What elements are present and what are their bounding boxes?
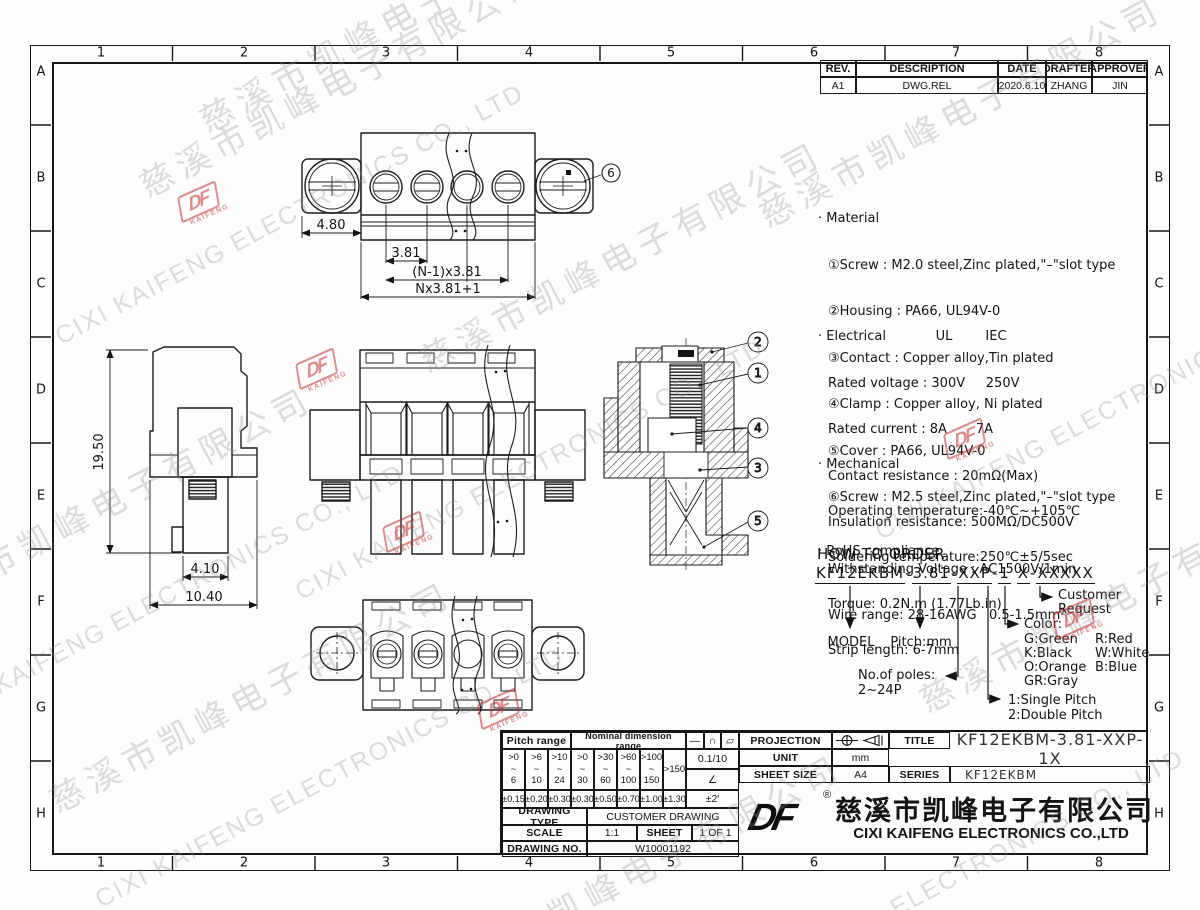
range-col: >100 ~ 150	[640, 749, 663, 790]
series-label: SERIES	[889, 766, 950, 783]
order-color-option: R:Red	[1095, 632, 1133, 647]
grid-col-label: 8	[1095, 47, 1103, 60]
range-col: >150	[663, 749, 686, 790]
tolerance-symbol-square: ▱	[721, 732, 739, 749]
section-title: · Electrical UL IEC	[818, 329, 1166, 345]
order-color-option: GR:Gray	[1024, 674, 1078, 689]
title-label: TITLE	[889, 732, 950, 749]
order-label-pitch: Pitch:mm	[886, 635, 956, 650]
company-block: DF ® 慈溪市凯峰电子有限公司 CIXI KAIFENG ELECTRONIC…	[739, 783, 1150, 857]
grid-row-label: D	[36, 384, 46, 397]
tolerance-value: ±0.30	[548, 790, 571, 808]
grid-row-label: H	[36, 808, 46, 821]
revision-cell: A1	[820, 77, 856, 94]
drawing-no-value: W10001192	[587, 841, 739, 857]
tolerance-value: ±0.15	[502, 790, 525, 808]
title-block: Pitch range Nominal dimension range — ∩ …	[500, 730, 1148, 855]
order-label-customer: Request	[1058, 602, 1111, 617]
grid-row-label: B	[37, 172, 46, 185]
series-value: KF12EKBM	[950, 766, 1150, 783]
pitch-range-header: Pitch range	[502, 732, 571, 749]
registered-mark: ®	[823, 789, 831, 801]
grid-row-label: F	[37, 596, 44, 609]
order-code: KF12EKBM-3.81-XXP-1 X-XXXXX	[815, 564, 1095, 582]
grid-col-label: 7	[952, 47, 960, 60]
tolerance-symbol-arc: ∩	[704, 732, 721, 749]
revision-table: REV. DESCRIPTION DATE DRAFTER APPROVER A…	[820, 60, 1148, 94]
order-color-option: W:White	[1095, 646, 1149, 661]
order-label-single-pitch: 1:Single Pitch	[1008, 693, 1096, 708]
tolerance-symbol-line: —	[686, 732, 704, 749]
grid-row-label: G	[36, 702, 46, 715]
projection-symbol-cell	[832, 732, 889, 749]
range-col: >10 ~ 24	[548, 749, 571, 790]
drawing-sheet: 4.80 3.81 (N-1)x3.81 Nx3.81+1 6 19.50	[0, 0, 1200, 910]
grid-col-label: 5	[667, 857, 675, 870]
range-col: >6 ~ 10	[525, 749, 548, 790]
grid-row-label: A	[1155, 66, 1164, 79]
sheet-label: SHEET	[637, 825, 692, 841]
grid-col-label: 6	[810, 47, 818, 60]
grid-col-label: 1	[97, 47, 105, 60]
range-col: >0 ~ 30	[571, 749, 594, 790]
order-color-option: O:Orange	[1024, 660, 1086, 675]
grid-col-label: 5	[667, 47, 675, 60]
revision-header: DESCRIPTION	[856, 60, 998, 77]
grid-col-label: 4	[525, 47, 533, 60]
unit-label: UNIT	[739, 749, 832, 766]
revision-cell: ZHANG	[1046, 77, 1092, 94]
grid-col-label: 8	[1095, 857, 1103, 870]
order-label-color: Color:	[1024, 617, 1062, 632]
grid-row-label: E	[37, 490, 45, 503]
revision-cell: DWG.REL	[856, 77, 998, 94]
revision-header: DRAFTER	[1046, 60, 1092, 77]
grid-col-label: 2	[240, 857, 248, 870]
company-logo: DF	[744, 797, 796, 840]
grid-col-label: 3	[382, 47, 390, 60]
projection-label: PROJECTION	[739, 732, 832, 749]
order-label-model: MODEL	[822, 635, 880, 650]
tolerance-value: ±0.20	[525, 790, 548, 808]
grid-row-label: A	[37, 66, 46, 79]
order-label-poles: No.of poles:	[858, 668, 935, 683]
grid-col-label: 3	[382, 857, 390, 870]
drawing-title: KF12EKBM-3.81-XXP-1X	[950, 732, 1150, 766]
grid-row-label: C	[36, 278, 45, 291]
company-name-en: CIXI KAIFENG ELECTRONICS CO.,LTD	[835, 825, 1147, 842]
grid-col-label: 2	[240, 47, 248, 60]
unit-value: mm	[832, 749, 889, 766]
angle-symbol: ∠	[686, 769, 739, 790]
nominal-range-header: Nominal dimension range	[571, 732, 686, 749]
range-col: >30 ~ 60	[594, 749, 617, 790]
revision-cell: JIN	[1092, 77, 1148, 94]
order-label-poles-range: 2~24P	[858, 683, 902, 698]
scale-value: 1:1	[587, 825, 637, 841]
revision-header: REV.	[820, 60, 856, 77]
tolerance-value: ±0.70	[617, 790, 640, 808]
how-to-order-title: HOW TO ORDER	[817, 547, 945, 562]
tolerance-value: ±0.30	[571, 790, 594, 808]
tolerance-value: ±1.30	[663, 790, 686, 808]
drawing-no-label: DRAWING NO.	[502, 841, 587, 857]
tolerance-value: ±0.50	[594, 790, 617, 808]
range-col: >60 ~ 100	[617, 749, 640, 790]
flatness-tolerance: 0.1/10	[686, 749, 739, 769]
grid-col-label: 7	[952, 857, 960, 870]
company-name-cn: 慈溪市凯峰电子有限公司	[835, 789, 1147, 828]
order-color-option: B:Blue	[1095, 660, 1137, 675]
section-title: · Mechanical	[818, 457, 1166, 473]
grid-col-label: 4	[525, 857, 533, 870]
sheet-size-value: A4	[832, 766, 889, 783]
grid-row-label: G	[1154, 702, 1164, 715]
angle-tolerance-value: ±2'	[686, 790, 739, 808]
range-col: >0 ~ 6	[502, 749, 525, 790]
order-label-customer: Customer	[1058, 588, 1121, 603]
grid-col-label: 6	[810, 857, 818, 870]
drawing-type-value: CUSTOMER DRAWING	[587, 808, 739, 825]
first-angle-projection-icon	[834, 733, 888, 748]
tolerance-value: ±1.00	[640, 790, 663, 808]
order-color-option: K:Black	[1024, 646, 1072, 661]
sheet-value: 1 OF 1	[692, 825, 739, 841]
revision-cell: 2020.6.10	[998, 77, 1046, 94]
grid-row-label: H	[1154, 808, 1164, 821]
order-color-option: G:Green	[1024, 632, 1078, 647]
drawing-type-label: DRAWING TYPE	[502, 808, 587, 825]
sheet-size-label: SHEET SIZE	[739, 766, 832, 783]
revision-header: DATE	[998, 60, 1046, 77]
section-title: · Material	[818, 211, 1166, 227]
grid-col-label: 1	[97, 857, 105, 870]
order-label-double-pitch: 2:Double Pitch	[1008, 708, 1103, 723]
revision-header: APPROVER	[1092, 60, 1148, 77]
scale-label: SCALE	[502, 825, 587, 841]
